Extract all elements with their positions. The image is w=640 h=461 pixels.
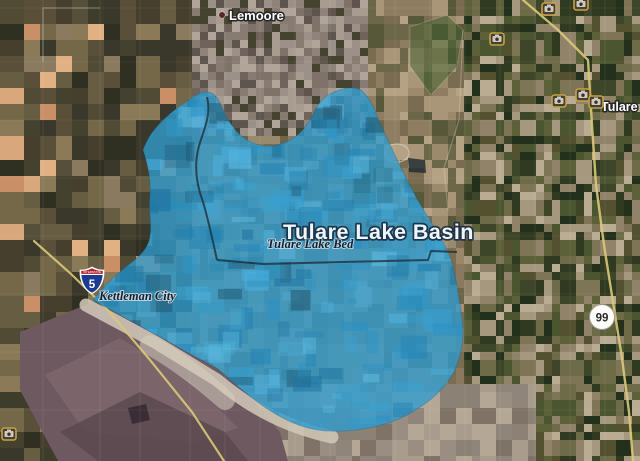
map-canvas[interactable]: Lemoore Tulare Tulare Lake Basin Tulare …: [0, 0, 640, 461]
city-label-kettleman-city: Kettleman City: [98, 289, 176, 303]
route-99-shield-icon: 99: [590, 305, 615, 330]
city-marker-dot-icon[interactable]: [219, 12, 225, 18]
city-label-tulare: Tulare: [601, 100, 638, 114]
photo-camera-icon[interactable]: [574, 0, 588, 10]
photo-camera-icon[interactable]: [542, 3, 556, 15]
region-label-tulare-lake-bed: Tulare Lake Bed: [267, 237, 354, 251]
photo-camera-icon[interactable]: [552, 95, 566, 107]
satellite-map[interactable]: Lemoore Tulare Tulare Lake Basin Tulare …: [0, 0, 640, 461]
photo-camera-icon[interactable]: [2, 428, 16, 440]
city-label-lemoore: Lemoore: [229, 8, 284, 23]
photo-camera-icon[interactable]: [490, 33, 504, 45]
photo-camera-icon[interactable]: [576, 89, 590, 101]
photo-camera-icon[interactable]: [589, 96, 603, 108]
